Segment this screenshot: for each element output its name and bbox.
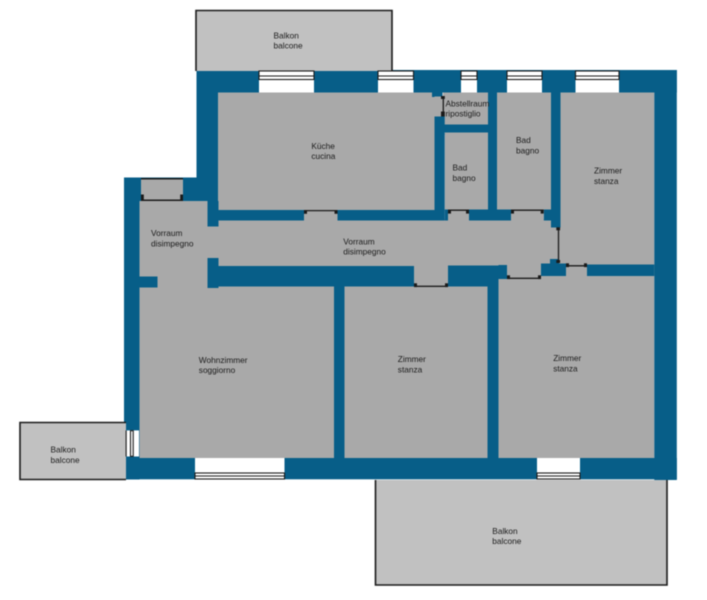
svg-text:stanza: stanza	[594, 176, 619, 186]
svg-text:stanza: stanza	[398, 364, 423, 374]
svg-text:Vorraum: Vorraum	[343, 236, 374, 246]
svg-text:Bad: Bad	[453, 163, 468, 173]
svg-text:Vorraum: Vorraum	[151, 228, 182, 238]
svg-text:cucina: cucina	[311, 151, 335, 161]
svg-text:balcone: balcone	[492, 536, 521, 546]
svg-text:disimpegno: disimpegno	[151, 238, 194, 248]
svg-text:Zimmer: Zimmer	[553, 353, 581, 363]
svg-text:bagno: bagno	[516, 145, 539, 155]
svg-text:soggiorno: soggiorno	[199, 365, 236, 375]
svg-text:Abstellraum: Abstellraum	[446, 98, 490, 108]
svg-text:disimpegno: disimpegno	[343, 247, 386, 257]
svg-text:balcone: balcone	[274, 41, 303, 51]
svg-text:ripostiglio: ripostiglio	[446, 109, 481, 119]
svg-text:Wohnzimmer: Wohnzimmer	[199, 355, 248, 365]
svg-text:Zimmer: Zimmer	[398, 354, 426, 364]
svg-text:Zimmer: Zimmer	[594, 166, 622, 176]
svg-text:balcone: balcone	[51, 455, 80, 465]
svg-text:stanza: stanza	[553, 363, 578, 373]
svg-text:Balkon: Balkon	[274, 30, 300, 40]
svg-text:Balkon: Balkon	[51, 445, 77, 455]
svg-text:Balkon: Balkon	[492, 526, 518, 536]
svg-text:Küche: Küche	[311, 141, 335, 151]
svg-text:Bad: Bad	[516, 135, 531, 145]
svg-text:bagno: bagno	[453, 173, 476, 183]
